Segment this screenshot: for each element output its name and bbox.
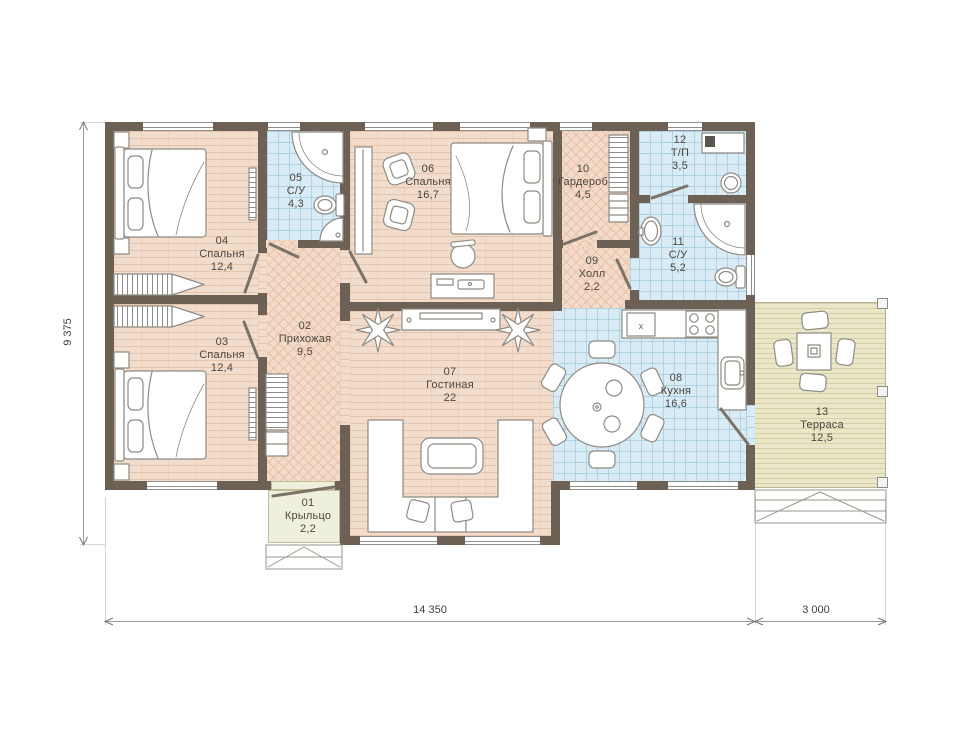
boiler-12: [721, 173, 741, 193]
room-number: 06: [383, 163, 473, 176]
room-area: 3,5: [635, 160, 725, 173]
room-name: Спальня: [383, 176, 473, 189]
room-number: 11: [633, 236, 723, 249]
floor-plan: x 04 Спальня 12,4 03 Спальня 12,4 05 С/У…: [0, 0, 953, 737]
door-leaf: [350, 252, 366, 282]
room-area: 4,5: [538, 189, 628, 202]
room-label-10: 10 Гардероб 4,5: [538, 163, 628, 202]
room-label-12: 12 Т/П 3,5: [635, 134, 725, 173]
room-name: Кухня: [631, 385, 721, 398]
room-label-01: 01 Крыльцо 2,2: [263, 497, 353, 536]
terrace-steps: [755, 490, 886, 523]
room-label-13: 13 Терраса 12,5: [777, 406, 867, 445]
room-area: 2,2: [547, 281, 637, 294]
room-number: 04: [177, 235, 267, 248]
room-area: 16,7: [383, 189, 473, 202]
terrace-table-set: [773, 311, 855, 392]
room-name: Холл: [547, 268, 637, 281]
room-area: 5,2: [633, 262, 723, 275]
dimension-right: 3 000: [766, 604, 866, 616]
room-number: 07: [405, 366, 495, 379]
room-label-02: 02 Прихожая 9,5: [260, 320, 350, 359]
plant: [347, 299, 409, 361]
door-leaf: [652, 186, 687, 198]
room-number: 02: [260, 320, 350, 333]
room-label-06: 06 Спальня 16,7: [383, 163, 473, 202]
room-area: 9,5: [260, 346, 350, 359]
terrace-post: [877, 477, 888, 488]
room-label-07: 07 Гостиная 22: [405, 366, 495, 405]
room-area: 2,2: [263, 523, 353, 536]
room-area: 12,4: [177, 362, 267, 375]
room-name: Т/П: [635, 147, 725, 160]
sofa-07: [368, 420, 533, 532]
room-area: 12,4: [177, 261, 267, 274]
room-number: 12: [635, 134, 725, 147]
room-area: 22: [405, 392, 495, 405]
room-name: Прихожая: [260, 333, 350, 346]
room-number: 09: [547, 255, 637, 268]
tv-stand-07: [402, 309, 500, 330]
wardrobe-02: [266, 374, 288, 456]
room-number: 01: [263, 497, 353, 510]
door-leaf: [564, 232, 596, 244]
sink-05: [320, 218, 343, 241]
plant: [487, 299, 549, 361]
desk-06: [431, 274, 494, 298]
room-name: Гостиная: [405, 379, 495, 392]
room-name: Спальня: [177, 248, 267, 261]
room-label-03: 03 Спальня 12,4: [177, 336, 267, 375]
door-leaf: [273, 487, 334, 496]
room-label-11: 11 С/У 5,2: [633, 236, 723, 275]
radiator: [249, 388, 256, 440]
kitchen-sink-mark: x: [639, 321, 644, 331]
dimension-width: 14 350: [380, 604, 480, 616]
room-area: 12,5: [777, 432, 867, 445]
room-label-09: 09 Холл 2,2: [547, 255, 637, 294]
room-name: Терраса: [777, 419, 867, 432]
wardrobe-bedrooms: [114, 274, 204, 327]
coffee-table-07: [421, 438, 483, 474]
room-number: 05: [251, 172, 341, 185]
door-leaf: [270, 244, 298, 257]
room-name: С/У: [633, 249, 723, 262]
room-label-08: 08 Кухня 16,6: [631, 372, 721, 411]
door-leaf: [721, 409, 748, 444]
desk-chair-06: [451, 240, 475, 268]
stove-08: [686, 311, 718, 337]
lounge-chair: [382, 198, 416, 232]
dimension-height: 9 375: [62, 302, 74, 362]
terrace-post: [877, 386, 888, 397]
room-number: 13: [777, 406, 867, 419]
wardrobe-06: [355, 147, 372, 254]
kitchen-sink-2: [721, 357, 744, 389]
room-name: Крыльцо: [263, 510, 353, 523]
room-name: Гардероб: [538, 176, 628, 189]
room-name: С/У: [251, 185, 341, 198]
room-area: 4,3: [251, 198, 341, 211]
room-number: 10: [538, 163, 628, 176]
terrace-post: [877, 298, 888, 309]
room-label-05: 05 С/У 4,3: [251, 172, 341, 211]
porch-steps: [266, 545, 342, 569]
room-label-04: 04 Спальня 12,4: [177, 235, 267, 274]
room-number: 03: [177, 336, 267, 349]
room-name: Спальня: [177, 349, 267, 362]
room-area: 16,6: [631, 398, 721, 411]
room-number: 08: [631, 372, 721, 385]
